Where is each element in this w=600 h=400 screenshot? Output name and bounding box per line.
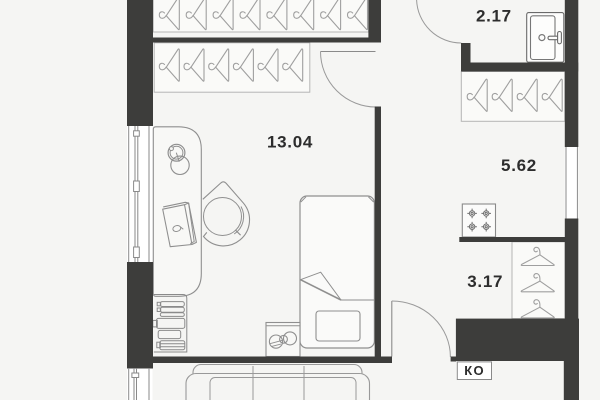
- svg-text:5.62: 5.62: [501, 156, 537, 175]
- svg-text:13.04: 13.04: [267, 133, 313, 152]
- svg-text:КО: КО: [464, 363, 485, 378]
- svg-text:3.17: 3.17: [467, 272, 503, 291]
- svg-text:2.17: 2.17: [476, 6, 512, 25]
